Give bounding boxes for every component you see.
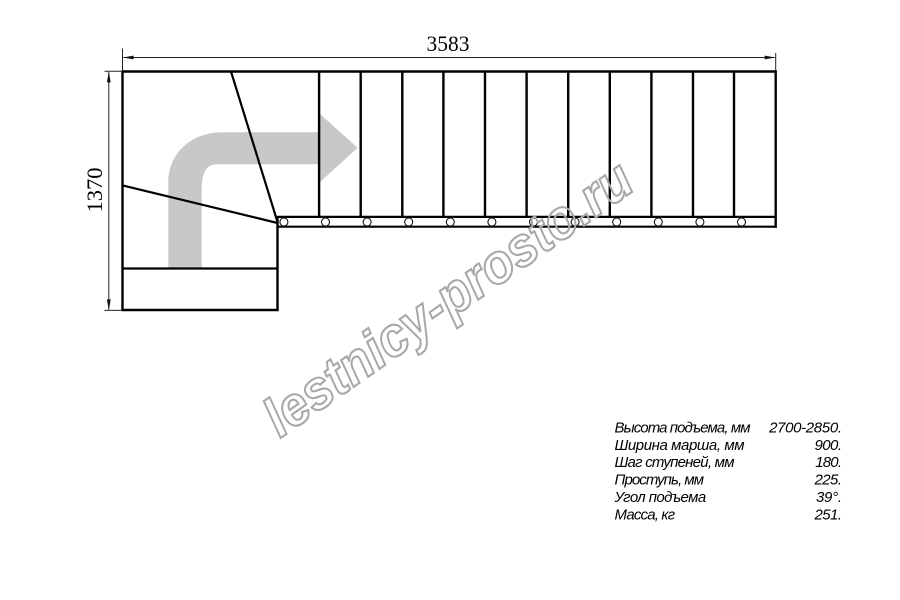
svg-text:1370: 1370 [82, 168, 107, 213]
svg-text:900.: 900. [815, 437, 843, 454]
svg-text:Высота подъема, мм: Высота подъема, мм [615, 420, 751, 437]
svg-text:39°.: 39°. [816, 489, 842, 506]
svg-text:225.: 225. [814, 472, 843, 489]
svg-text:Угол подъема: Угол подъема [614, 489, 707, 506]
svg-text:180.: 180. [815, 454, 842, 471]
svg-text:2700-2850.: 2700-2850. [768, 420, 842, 437]
svg-text:251.: 251. [814, 506, 843, 523]
svg-text:lestnicy-prosto.ru: lestnicy-prosto.ru [251, 147, 644, 448]
svg-text:Масса, кг: Масса, кг [615, 506, 676, 523]
svg-text:Проступь, мм: Проступь, мм [615, 472, 705, 489]
svg-text:3583: 3583 [427, 31, 470, 56]
svg-text:Шаг ступеней, мм: Шаг ступеней, мм [615, 454, 735, 471]
svg-text:Ширина марша, мм: Ширина марша, мм [615, 437, 745, 454]
